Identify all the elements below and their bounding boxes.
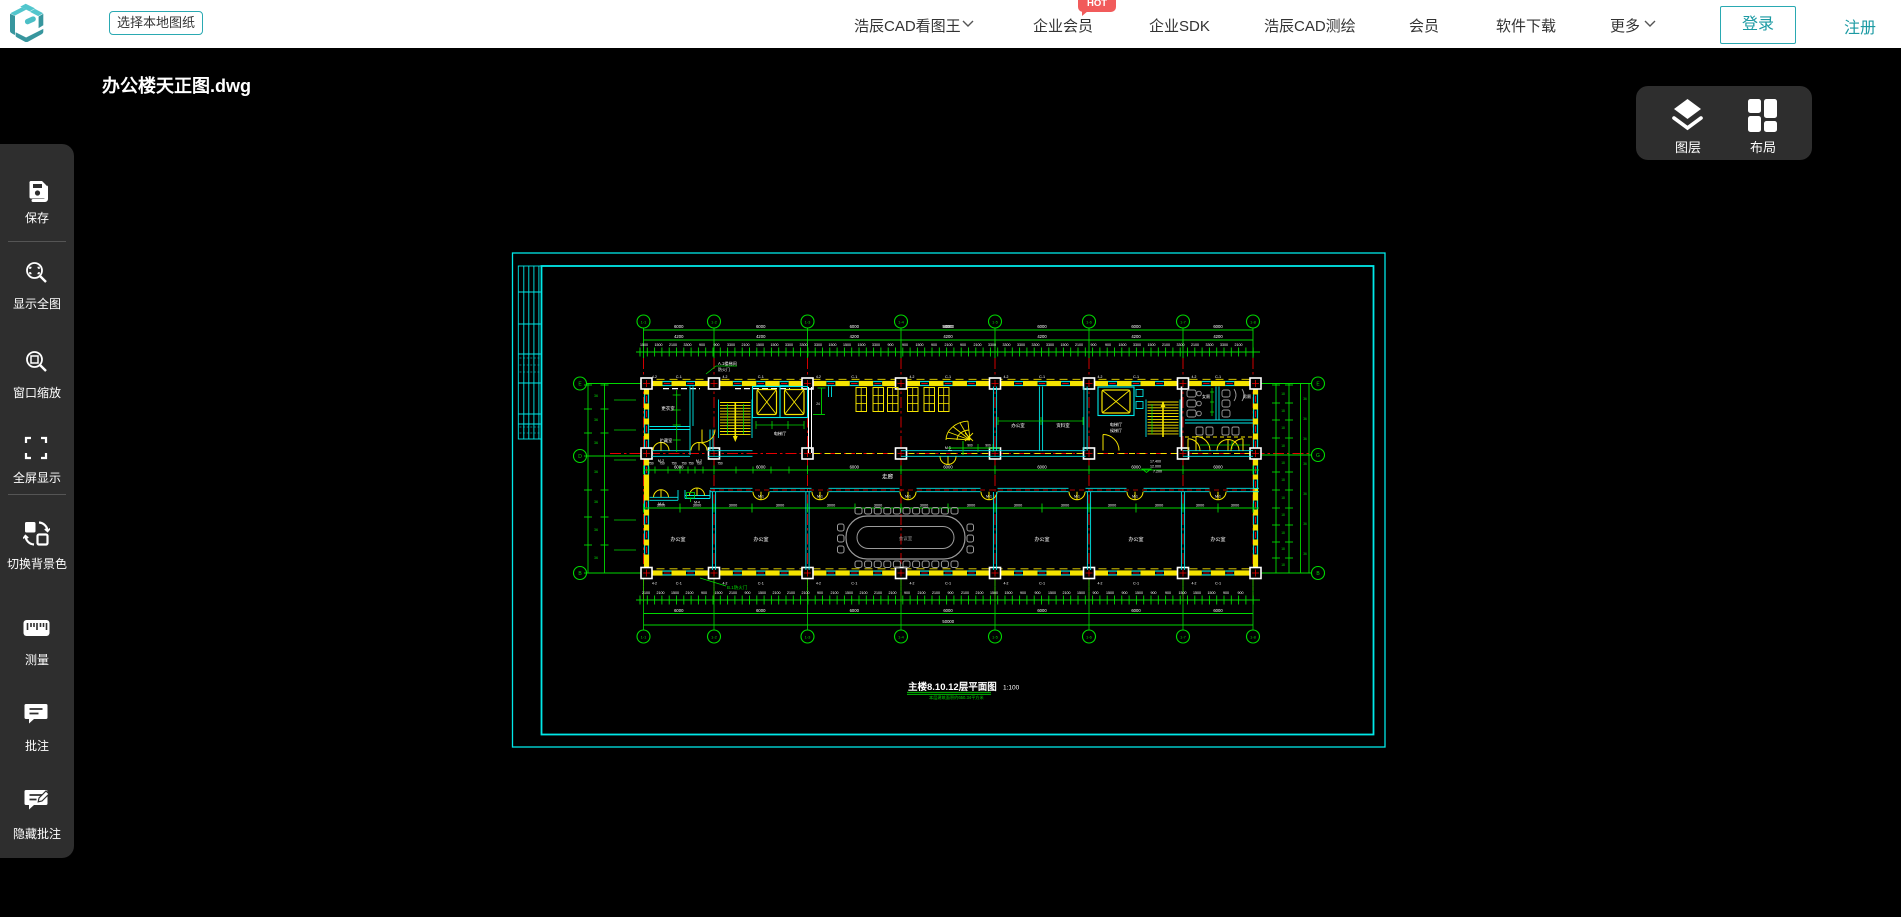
svg-text:6000: 6000 xyxy=(674,608,684,613)
svg-text:36: 36 xyxy=(1303,437,1307,441)
svg-text:1-8: 1-8 xyxy=(1250,320,1257,325)
svg-text:4200: 4200 xyxy=(943,334,953,339)
svg-text:1500: 1500 xyxy=(715,591,723,595)
svg-text:2100: 2100 xyxy=(976,591,984,595)
svg-text:18: 18 xyxy=(1281,409,1285,413)
svg-text:18: 18 xyxy=(1281,563,1285,567)
svg-text:750: 750 xyxy=(696,462,702,466)
svg-text:18: 18 xyxy=(1281,426,1285,430)
svg-text:4-2: 4-2 xyxy=(1098,582,1103,586)
svg-text:17.400: 17.400 xyxy=(1150,460,1161,464)
svg-text:3300: 3300 xyxy=(800,343,808,347)
svg-text:900: 900 xyxy=(1238,591,1244,595)
svg-text:走廊: 走廊 xyxy=(882,473,894,481)
svg-text:3300: 3300 xyxy=(1206,343,1214,347)
svg-text:2100: 2100 xyxy=(860,591,868,595)
svg-text:1-3: 1-3 xyxy=(805,320,812,325)
svg-text:4-2: 4-2 xyxy=(723,582,728,586)
svg-text:6000: 6000 xyxy=(756,324,766,329)
svg-text:C-1: C-1 xyxy=(1215,582,1221,586)
svg-text:G: G xyxy=(1316,453,1320,459)
svg-text:18: 18 xyxy=(1281,513,1285,517)
svg-text:3300: 3300 xyxy=(785,343,793,347)
svg-text:36: 36 xyxy=(594,556,598,560)
svg-text:2100: 2100 xyxy=(918,591,926,595)
svg-text:6000: 6000 xyxy=(850,608,860,613)
svg-text:4-2: 4-2 xyxy=(652,582,657,586)
svg-text:50000: 50000 xyxy=(942,324,954,329)
svg-text:3300: 3300 xyxy=(1220,343,1228,347)
svg-text:M-1: M-1 xyxy=(817,495,823,499)
svg-text:更衣室: 更衣室 xyxy=(661,405,675,412)
svg-text:1500: 1500 xyxy=(1193,591,1201,595)
svg-text:C-1: C-1 xyxy=(1133,375,1139,379)
svg-text:2100: 2100 xyxy=(831,591,839,595)
svg-text:4-2: 4-2 xyxy=(1192,582,1197,586)
svg-text:4200: 4200 xyxy=(1131,334,1141,339)
svg-text:900: 900 xyxy=(699,343,705,347)
svg-text:50000: 50000 xyxy=(942,619,954,624)
svg-text:2100: 2100 xyxy=(787,591,795,595)
svg-text:C-1: C-1 xyxy=(676,375,682,379)
svg-text:4200: 4200 xyxy=(850,334,860,339)
svg-text:3300: 3300 xyxy=(1133,343,1141,347)
svg-text:3000: 3000 xyxy=(1014,503,1022,507)
svg-text:3300: 3300 xyxy=(814,343,822,347)
svg-text:E: E xyxy=(1316,382,1320,388)
svg-text:M-4: M-4 xyxy=(658,502,664,506)
svg-text:4-2: 4-2 xyxy=(1004,375,1009,379)
svg-text:3300: 3300 xyxy=(1032,343,1040,347)
svg-text:1500: 1500 xyxy=(843,343,851,347)
svg-text:2100: 2100 xyxy=(657,591,665,595)
svg-text:办公室: 办公室 xyxy=(1011,422,1025,429)
svg-text:1500: 1500 xyxy=(1048,591,1056,595)
svg-text:2100: 2100 xyxy=(961,591,969,595)
svg-text:36: 36 xyxy=(594,528,598,532)
svg-text:36: 36 xyxy=(594,394,598,398)
svg-text:C-1: C-1 xyxy=(851,582,857,586)
svg-text:2100: 2100 xyxy=(742,343,750,347)
svg-text:900: 900 xyxy=(904,591,910,595)
svg-text:6000: 6000 xyxy=(1037,464,1047,469)
svg-text:1500: 1500 xyxy=(640,343,648,347)
svg-text:1500: 1500 xyxy=(858,343,866,347)
svg-text:900: 900 xyxy=(745,591,751,595)
svg-text:M-1: M-1 xyxy=(1074,495,1080,499)
svg-text:办公室: 办公室 xyxy=(1034,536,1049,543)
svg-text:36: 36 xyxy=(594,418,598,422)
svg-text:6000: 6000 xyxy=(850,464,860,469)
svg-text:3300: 3300 xyxy=(1046,343,1054,347)
svg-text:3000: 3000 xyxy=(729,503,737,507)
svg-text:M-1: M-1 xyxy=(1132,495,1138,499)
svg-text:4-2: 4-2 xyxy=(1192,375,1197,379)
svg-text:4-2: 4-2 xyxy=(816,375,821,379)
svg-text:18: 18 xyxy=(1281,478,1285,482)
svg-text:36: 36 xyxy=(1303,522,1307,526)
svg-text:1500: 1500 xyxy=(990,591,998,595)
svg-text:6000: 6000 xyxy=(943,608,953,613)
svg-text:C-1: C-1 xyxy=(851,375,857,379)
svg-text:4200: 4200 xyxy=(1213,334,1223,339)
svg-text:3300: 3300 xyxy=(727,343,735,347)
svg-text:900: 900 xyxy=(967,444,973,448)
svg-text:1-7: 1-7 xyxy=(1180,635,1187,640)
svg-text:3000: 3000 xyxy=(874,503,882,507)
svg-text:电梯厅: 电梯厅 xyxy=(1110,421,1123,428)
svg-text:6000: 6000 xyxy=(674,324,684,329)
svg-text:办公室: 办公室 xyxy=(753,536,768,543)
svg-text:900: 900 xyxy=(1091,343,1097,347)
svg-text:900: 900 xyxy=(1151,591,1157,595)
svg-text:6000: 6000 xyxy=(1213,608,1223,613)
svg-text:1-6: 1-6 xyxy=(1086,635,1093,640)
svg-text:1500: 1500 xyxy=(1005,591,1013,595)
svg-text:2100: 2100 xyxy=(1191,343,1199,347)
svg-text:750: 750 xyxy=(648,462,654,466)
svg-text:4-2: 4-2 xyxy=(910,375,915,379)
svg-text:2100: 2100 xyxy=(889,591,897,595)
svg-text:6000: 6000 xyxy=(1131,608,1141,613)
svg-text:2100: 2100 xyxy=(773,591,781,595)
svg-text:1-7: 1-7 xyxy=(1180,320,1187,325)
svg-text:2100: 2100 xyxy=(642,591,650,595)
svg-text:1500: 1500 xyxy=(1061,343,1069,347)
svg-text:3000: 3000 xyxy=(1061,503,1069,507)
svg-text:C-1: C-1 xyxy=(758,582,764,586)
svg-text:900: 900 xyxy=(1105,343,1111,347)
svg-text:1500: 1500 xyxy=(1135,591,1143,595)
svg-text:18: 18 xyxy=(1281,496,1285,500)
svg-text:C-1: C-1 xyxy=(758,375,764,379)
svg-text:2100: 2100 xyxy=(1063,591,1071,595)
svg-text:1-3: 1-3 xyxy=(805,635,812,640)
svg-text:贮藏室: 贮藏室 xyxy=(660,437,673,444)
svg-text:本层建筑面积约650.34平方米: 本层建筑面积约650.34平方米 xyxy=(929,694,984,701)
svg-text:36: 36 xyxy=(1303,462,1307,466)
svg-text:900: 900 xyxy=(817,591,823,595)
svg-text:2100: 2100 xyxy=(945,343,953,347)
svg-text:6000: 6000 xyxy=(850,324,860,329)
svg-text:会议室: 会议室 xyxy=(899,535,913,542)
svg-text:1-4: 1-4 xyxy=(898,320,905,325)
svg-text:900: 900 xyxy=(714,343,720,347)
svg-text:E: E xyxy=(578,382,582,388)
svg-text:750: 750 xyxy=(659,462,665,466)
svg-text:3000: 3000 xyxy=(1155,503,1163,507)
svg-text:C-1: C-1 xyxy=(945,375,951,379)
svg-text:2100: 2100 xyxy=(1235,343,1243,347)
svg-text:3000: 3000 xyxy=(776,503,784,507)
svg-text:1500: 1500 xyxy=(1077,591,1085,595)
svg-text:3000: 3000 xyxy=(1231,503,1239,507)
svg-text:C-1: C-1 xyxy=(1133,582,1139,586)
svg-text:3000: 3000 xyxy=(1196,503,1204,507)
svg-text:1500: 1500 xyxy=(1208,591,1216,595)
svg-text:6000: 6000 xyxy=(1131,324,1141,329)
svg-text:6000: 6000 xyxy=(1037,608,1047,613)
svg-text:3000: 3000 xyxy=(827,503,835,507)
svg-text:2100: 2100 xyxy=(802,591,810,595)
svg-text:C-1: C-1 xyxy=(1039,582,1045,586)
svg-text:办公室: 办公室 xyxy=(1128,536,1143,543)
svg-text:1500: 1500 xyxy=(1106,591,1114,595)
svg-text:36: 36 xyxy=(1303,552,1307,556)
svg-text:A.1楼梯间: A.1楼梯间 xyxy=(718,360,737,367)
svg-text:1500: 1500 xyxy=(771,343,779,347)
svg-text:1500: 1500 xyxy=(758,591,766,595)
svg-text:1-1: 1-1 xyxy=(641,635,648,640)
svg-text:1-2: 1-2 xyxy=(711,320,718,325)
svg-text:M-4: M-4 xyxy=(694,501,700,505)
svg-text:900: 900 xyxy=(1122,591,1128,595)
svg-text:900: 900 xyxy=(1093,591,1099,595)
svg-text:1:100: 1:100 xyxy=(1003,685,1020,692)
svg-text:900: 900 xyxy=(701,591,707,595)
svg-text:候梯厅: 候梯厅 xyxy=(1110,427,1122,433)
svg-text:900: 900 xyxy=(948,591,954,595)
svg-text:7.200: 7.200 xyxy=(1153,470,1162,474)
svg-text:1500: 1500 xyxy=(1119,343,1127,347)
svg-text:900: 900 xyxy=(902,343,908,347)
svg-text:6000: 6000 xyxy=(943,464,953,469)
svg-text:6000: 6000 xyxy=(756,608,766,613)
svg-text:防火门: 防火门 xyxy=(718,366,730,372)
svg-text:办公室: 办公室 xyxy=(670,536,685,543)
svg-text:1-1: 1-1 xyxy=(641,320,648,325)
svg-text:2100: 2100 xyxy=(874,591,882,595)
svg-text:4200: 4200 xyxy=(674,334,684,339)
svg-text:1500: 1500 xyxy=(1179,591,1187,595)
svg-text:1500: 1500 xyxy=(655,343,663,347)
svg-text:2100: 2100 xyxy=(1075,343,1083,347)
svg-text:6000: 6000 xyxy=(674,464,684,469)
svg-text:36: 36 xyxy=(594,470,598,474)
svg-text:4-2: 4-2 xyxy=(1098,375,1103,379)
svg-text:电梯厅: 电梯厅 xyxy=(774,430,787,437)
svg-text:3000: 3000 xyxy=(1108,503,1116,507)
svg-text:12.000: 12.000 xyxy=(1150,465,1161,469)
svg-text:2100: 2100 xyxy=(974,343,982,347)
svg-text:3300: 3300 xyxy=(988,343,996,347)
svg-text:1500: 1500 xyxy=(1148,343,1156,347)
svg-text:M-1: M-1 xyxy=(986,495,992,499)
svg-text:资料室: 资料室 xyxy=(1056,422,1070,429)
svg-text:4200: 4200 xyxy=(1037,334,1047,339)
svg-text:1-4: 1-4 xyxy=(898,635,905,640)
svg-text:3300: 3300 xyxy=(1017,343,1025,347)
svg-text:36: 36 xyxy=(1303,397,1307,401)
svg-text:24: 24 xyxy=(816,402,820,406)
svg-text:M-1: M-1 xyxy=(758,495,764,499)
svg-text:900: 900 xyxy=(1165,591,1171,595)
svg-text:4-2: 4-2 xyxy=(723,375,728,379)
svg-text:2100: 2100 xyxy=(932,591,940,595)
svg-text:男厕: 男厕 xyxy=(1243,393,1251,399)
svg-text:900: 900 xyxy=(931,343,937,347)
svg-text:C-1: C-1 xyxy=(1215,375,1221,379)
svg-text:6000: 6000 xyxy=(756,464,766,469)
svg-text:3000: 3000 xyxy=(967,503,975,507)
svg-text:2100: 2100 xyxy=(1162,343,1170,347)
svg-text:4-2: 4-2 xyxy=(1004,582,1009,586)
svg-text:C-1: C-1 xyxy=(945,582,951,586)
svg-text:36: 36 xyxy=(594,500,598,504)
svg-text:3300: 3300 xyxy=(684,343,692,347)
svg-text:900: 900 xyxy=(888,343,894,347)
svg-text:2100: 2100 xyxy=(729,591,737,595)
svg-text:3300: 3300 xyxy=(1003,343,1011,347)
svg-text:18: 18 xyxy=(1281,547,1285,551)
svg-text:1-6: 1-6 xyxy=(1086,320,1093,325)
svg-text:B.1防火门: B.1防火门 xyxy=(727,584,748,591)
svg-text:1500: 1500 xyxy=(845,591,853,595)
svg-text:3000: 3000 xyxy=(920,503,928,507)
svg-text:1500: 1500 xyxy=(829,343,837,347)
svg-text:6000: 6000 xyxy=(1213,324,1223,329)
svg-text:6000: 6000 xyxy=(1037,324,1047,329)
svg-text:900: 900 xyxy=(985,444,991,448)
svg-text:4-2: 4-2 xyxy=(910,582,915,586)
svg-text:主楼8.10.12层平面图: 主楼8.10.12层平面图 xyxy=(908,681,997,693)
svg-text:900: 900 xyxy=(960,343,966,347)
svg-text:M-1: M-1 xyxy=(905,495,911,499)
svg-text:B: B xyxy=(578,571,582,577)
svg-text:D: D xyxy=(578,454,582,460)
svg-text:1500: 1500 xyxy=(756,343,764,347)
svg-text:36: 36 xyxy=(594,441,598,445)
svg-text:办公室: 办公室 xyxy=(1210,536,1225,543)
svg-text:4-2: 4-2 xyxy=(816,582,821,586)
svg-text:6000: 6000 xyxy=(1213,464,1223,469)
svg-text:900: 900 xyxy=(1020,591,1026,595)
svg-text:C-1: C-1 xyxy=(676,582,682,586)
svg-text:750: 750 xyxy=(688,462,694,466)
svg-text:2100: 2100 xyxy=(686,591,694,595)
svg-text:女厕: 女厕 xyxy=(1202,393,1210,399)
svg-text:18: 18 xyxy=(1281,392,1285,396)
svg-text:B: B xyxy=(1316,571,1320,577)
svg-text:18: 18 xyxy=(1281,461,1285,465)
svg-text:1-5: 1-5 xyxy=(992,635,999,640)
svg-text:18: 18 xyxy=(1281,531,1285,535)
svg-text:6000: 6000 xyxy=(1131,464,1141,469)
svg-text:900: 900 xyxy=(1035,591,1041,595)
svg-text:1-2: 1-2 xyxy=(711,635,718,640)
svg-text:1-8: 1-8 xyxy=(1250,635,1257,640)
svg-text:3300: 3300 xyxy=(872,343,880,347)
svg-text:2100: 2100 xyxy=(669,343,677,347)
svg-text:900: 900 xyxy=(1223,591,1229,595)
svg-text:18: 18 xyxy=(1281,444,1285,448)
svg-text:1500: 1500 xyxy=(916,343,924,347)
svg-text:4200: 4200 xyxy=(756,334,766,339)
svg-text:3300: 3300 xyxy=(1177,343,1185,347)
svg-text:M-1: M-1 xyxy=(1215,495,1221,499)
svg-text:1-5: 1-5 xyxy=(992,320,999,325)
svg-text:1500: 1500 xyxy=(671,591,679,595)
svg-text:36: 36 xyxy=(1303,492,1307,496)
svg-text:750: 750 xyxy=(717,462,723,466)
svg-text:36: 36 xyxy=(1303,417,1307,421)
svg-text:C-1: C-1 xyxy=(1039,375,1045,379)
